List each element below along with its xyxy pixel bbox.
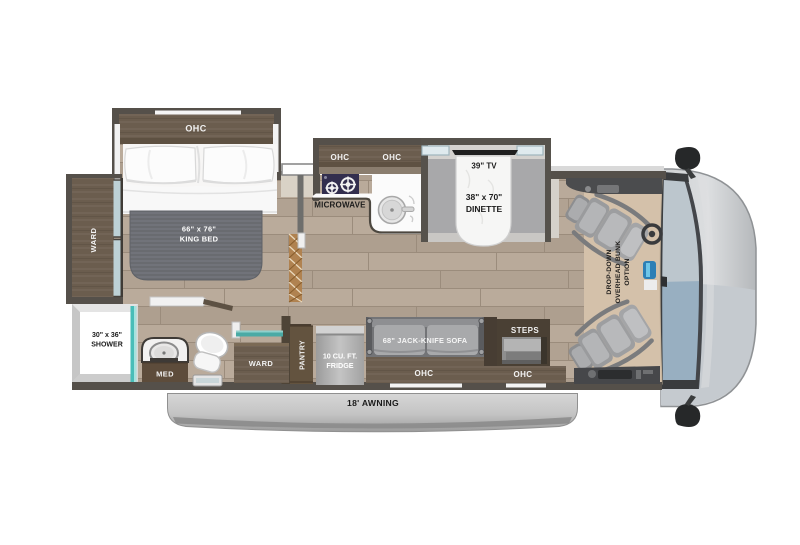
svg-text:WARD: WARD [89, 227, 98, 252]
svg-text:38" x 70": 38" x 70" [466, 192, 502, 202]
svg-text:OHC: OHC [383, 153, 402, 162]
svg-text:68" JACK-KNIFE SOFA: 68" JACK-KNIFE SOFA [383, 336, 468, 345]
svg-text:KING BED: KING BED [180, 235, 219, 244]
svg-text:MICROWAVE: MICROWAVE [314, 201, 366, 210]
svg-text:66" x 76": 66" x 76" [182, 225, 217, 234]
svg-text:SHOWER: SHOWER [91, 342, 123, 349]
svg-text:39" TV: 39" TV [471, 162, 497, 171]
svg-text:OHC: OHC [185, 124, 206, 134]
svg-text:OPTION: OPTION [624, 258, 631, 285]
svg-text:MED: MED [156, 370, 174, 379]
svg-text:FRIDGE: FRIDGE [326, 361, 353, 370]
svg-text:10 CU. FT.: 10 CU. FT. [323, 352, 357, 361]
svg-text:OVERHEAD BUNK: OVERHEAD BUNK [615, 241, 622, 304]
svg-text:DINETTE: DINETTE [466, 204, 503, 214]
svg-text:DROP-DOWN: DROP-DOWN [606, 249, 613, 294]
svg-text:OHC: OHC [331, 153, 350, 162]
svg-text:18' AWNING: 18' AWNING [347, 398, 399, 408]
svg-text:30" x 36": 30" x 36" [92, 332, 122, 339]
svg-text:OHC: OHC [514, 370, 533, 379]
svg-text:WARD: WARD [249, 359, 274, 368]
svg-text:STEPS: STEPS [511, 326, 539, 335]
svg-text:PANTRY: PANTRY [300, 340, 307, 370]
svg-text:OHC: OHC [415, 369, 434, 378]
